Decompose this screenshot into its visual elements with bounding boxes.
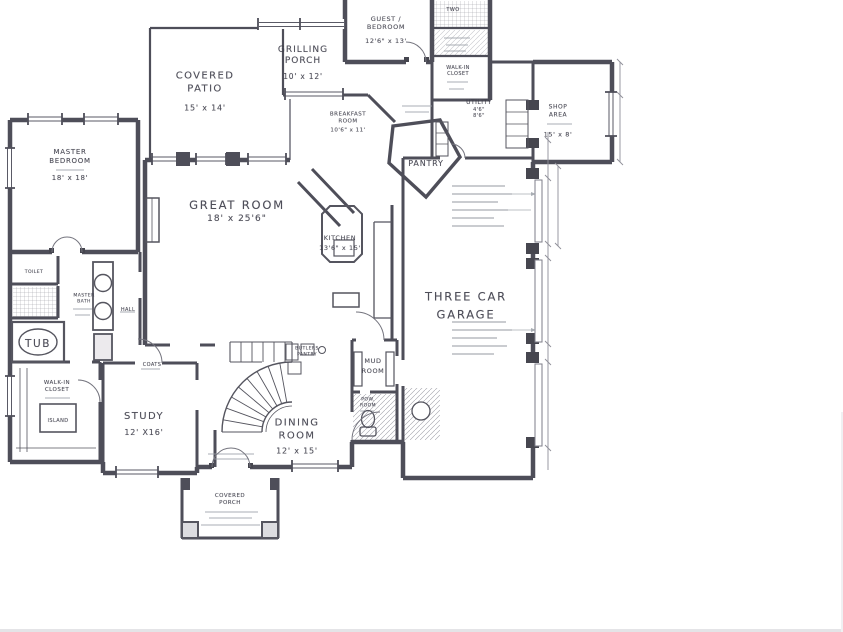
room-label-shop-area: SHOP AREA 15' x 8' bbox=[544, 103, 573, 138]
room-label-powder-room: POW. ROOM bbox=[360, 397, 376, 408]
room-label-coats: COATS bbox=[143, 351, 162, 371]
room-label-master-bedroom: MASTER BEDROOM 18' x 18' bbox=[49, 148, 90, 182]
room-label-kitchen: KITCHEN 13'6" x 15' bbox=[319, 234, 361, 252]
room-label-hall: HALL bbox=[121, 296, 135, 316]
floor-plan-drawing bbox=[0, 0, 843, 632]
room-label-utility: UTILITY 4'6" 8'6" bbox=[466, 99, 492, 119]
room-label-three-car-garage: THREE CAR GARAGE bbox=[425, 290, 507, 323]
room-label-tub: TUB bbox=[25, 332, 51, 352]
room-label-breakfast-room: BREAKFAST ROOM 10'6" x 11' bbox=[330, 112, 366, 135]
room-label-pantry: PANTRY bbox=[408, 151, 443, 171]
room-label-covered-porch: COVERED PORCH bbox=[215, 493, 245, 507]
room-label-mud-room: MUD ROOM bbox=[362, 357, 385, 375]
room-label-bath-two: TWO bbox=[446, 0, 459, 16]
room-label-master-bath: MASTER BATH bbox=[73, 293, 94, 304]
room-label-dining-room: DINING ROOM 12' x 15' bbox=[275, 418, 320, 457]
label-closet-island: ISLAND bbox=[48, 407, 69, 427]
room-label-walk-in-closet-upper: WALK-IN CLOSET bbox=[446, 65, 469, 78]
room-label-guest-bedroom: GUEST / BEDROOM 12'6" x 13' bbox=[365, 15, 407, 45]
room-label-walk-in-closet-master: WALK-IN CLOSET bbox=[44, 380, 70, 394]
room-label-grilling-porch: GRILLING PORCH 10' x 12' bbox=[278, 45, 328, 81]
room-label-great-room: GREAT ROOM 18' x 25'6" bbox=[189, 198, 285, 226]
room-label-study: STUDY 12' X16' bbox=[124, 411, 164, 438]
windows bbox=[5, 18, 617, 478]
floor-plan-page: COVERED PATIO 15' x 14' GRILLING PORCH 1… bbox=[0, 0, 843, 632]
room-label-butlers-pantry: BUTLERS PANTRY bbox=[295, 346, 319, 357]
room-label-covered-patio: COVERED PATIO 15' x 14' bbox=[176, 71, 235, 114]
room-label-toilet: TOILET bbox=[25, 258, 43, 278]
